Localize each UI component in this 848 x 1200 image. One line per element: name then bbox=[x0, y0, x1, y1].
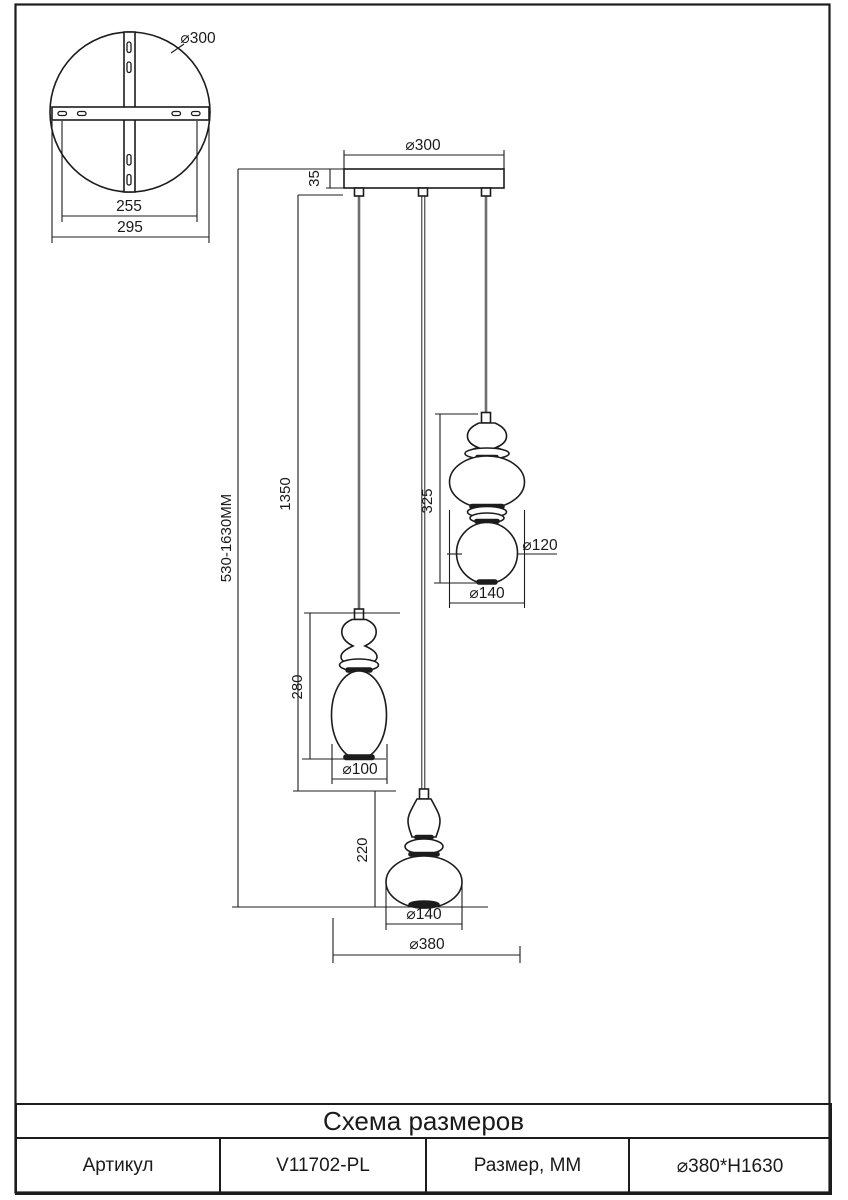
lamp-right-connector bbox=[482, 413, 491, 424]
bottom-lamp-diameter-label: ⌀140 bbox=[406, 906, 442, 923]
dimension-drawing: ⌀300 255 295 bbox=[0, 0, 848, 1200]
right-lamp-body-diameter-label: ⌀140 bbox=[469, 585, 505, 602]
cord-length-label: 1350 bbox=[277, 477, 294, 510]
mount-bracket-span-label: 255 bbox=[116, 198, 142, 215]
spec-table: Схема размеров Артикул V11702-PL Размер,… bbox=[15, 1103, 832, 1195]
lamp-bottom-connector bbox=[420, 789, 429, 799]
lamp-middle-body bbox=[332, 671, 387, 759]
lamp-middle-connector bbox=[355, 609, 364, 620]
size-value-cell: ⌀380*H1630 bbox=[630, 1139, 830, 1193]
lamp-right-band-4 bbox=[477, 580, 497, 584]
mount-bracket-horizontal bbox=[52, 107, 209, 120]
canopy-grip-left bbox=[355, 188, 364, 196]
lamp-middle-finial bbox=[341, 620, 377, 665]
canopy-height-label: 35 bbox=[306, 170, 323, 187]
middle-lamp-height-label: 280 bbox=[289, 674, 306, 699]
lamp-right-upper-globe bbox=[450, 456, 525, 508]
lamp-bottom bbox=[386, 789, 462, 908]
canopy-grip-middle bbox=[419, 188, 428, 196]
mount-plate-span-label: 295 bbox=[117, 219, 143, 236]
overall-diameter-label: ⌀380 bbox=[409, 936, 445, 953]
lamp-bottom-neck bbox=[408, 799, 440, 837]
lamp-right bbox=[450, 413, 525, 585]
canopy-grip-right bbox=[482, 188, 491, 196]
spec-table-title: Схема размеров bbox=[17, 1105, 830, 1139]
canopy bbox=[344, 169, 504, 196]
lamp-right-lower-globe bbox=[457, 523, 518, 584]
bottom-lamp-height-label: 220 bbox=[354, 837, 371, 862]
overall-height-label: 530-1630MM bbox=[218, 494, 235, 582]
spec-table-row: Артикул V11702-PL Размер, ММ ⌀380*H1630 bbox=[17, 1139, 830, 1193]
canopy-body bbox=[344, 169, 504, 188]
mount-diameter-label: ⌀300 bbox=[180, 30, 216, 47]
right-lamp-sphere-diameter-label: ⌀120 bbox=[522, 537, 558, 554]
lamp-middle bbox=[332, 609, 387, 760]
size-label-cell: Размер, ММ bbox=[427, 1139, 630, 1193]
middle-lamp-diameter-label: ⌀100 bbox=[342, 761, 378, 778]
dimension-sheet: ⌀300 255 295 bbox=[0, 0, 848, 1200]
right-lamp-height-label: 325 bbox=[419, 488, 436, 513]
article-label-cell: Артикул bbox=[17, 1139, 221, 1193]
article-value-cell: V11702-PL bbox=[221, 1139, 427, 1193]
canopy-diameter-label: ⌀300 bbox=[405, 137, 441, 154]
